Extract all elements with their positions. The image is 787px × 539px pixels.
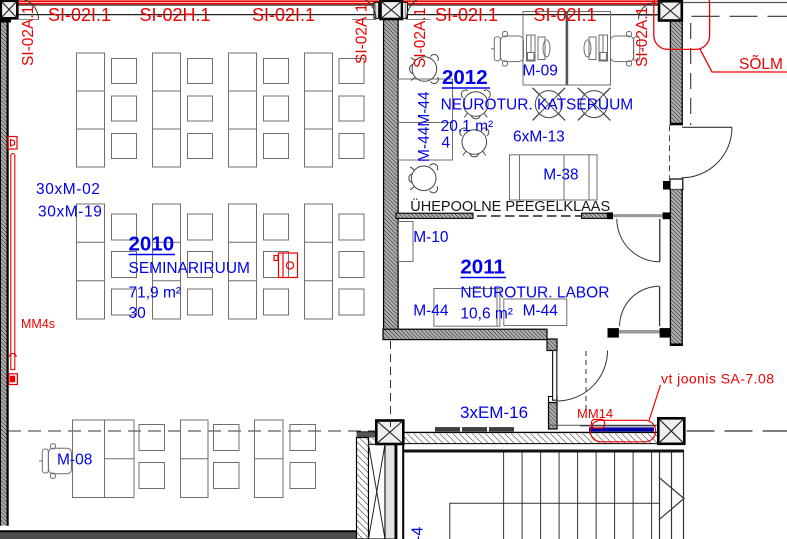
svg-text:30xM-19: 30xM-19	[38, 204, 103, 221]
svg-text:71,9 m²: 71,9 m²	[129, 285, 182, 302]
svg-text:SÕLM 2: SÕLM 2	[739, 56, 787, 73]
svg-text:M-08: M-08	[57, 452, 92, 469]
svg-text:ÜHEPOOLNE PEEGELKLAAS: ÜHEPOOLNE PEEGELKLAAS	[410, 197, 610, 215]
svg-text:20,1 m²: 20,1 m²	[441, 118, 494, 135]
svg-text:SI-02I.1: SI-02I.1	[48, 5, 111, 25]
svg-text:30: 30	[129, 305, 147, 322]
svg-text:MM4s: MM4s	[21, 317, 55, 331]
svg-text:2010: 2010	[129, 233, 175, 256]
svg-text:6xM-13: 6xM-13	[513, 129, 565, 146]
svg-text:30xM-02: 30xM-02	[36, 181, 101, 198]
svg-text:SI-02H.1: SI-02H.1	[140, 5, 211, 25]
svg-text:SI-02A.1: SI-02A.1	[354, 4, 371, 64]
svg-text:2012: 2012	[442, 66, 488, 89]
svg-text:-4: -4	[410, 527, 427, 539]
svg-text:M-44: M-44	[523, 303, 559, 320]
svg-text:SI-02A.1: SI-02A.1	[412, 8, 429, 68]
svg-text:3xEM-16: 3xEM-16	[460, 403, 528, 422]
svg-text:NEUROTUR. KATSERUUM: NEUROTUR. KATSERUUM	[441, 97, 634, 114]
svg-text:NEUROTUR. LABOR: NEUROTUR. LABOR	[460, 285, 609, 302]
svg-text:MM14: MM14	[577, 406, 613, 421]
svg-text:M-10: M-10	[413, 229, 449, 246]
svg-text:M-38: M-38	[543, 167, 578, 184]
svg-text:M-44M-44: M-44M-44	[416, 91, 433, 162]
svg-text:SI-02I.1: SI-02I.1	[252, 5, 315, 25]
svg-text:SI-02I.1: SI-02I.1	[435, 5, 498, 25]
svg-text:SI-02A.1: SI-02A.1	[634, 7, 651, 67]
svg-text:2011: 2011	[460, 256, 504, 279]
svg-text:SI-02A.1: SI-02A.1	[20, 6, 37, 66]
svg-text:SEMINARIRUUM: SEMINARIRUUM	[129, 260, 250, 277]
svg-text:M-44: M-44	[413, 303, 449, 320]
svg-text:M-09: M-09	[523, 63, 558, 80]
svg-text:10,6 m²: 10,6 m²	[460, 306, 513, 323]
svg-text:SI-02I.1: SI-02I.1	[534, 5, 597, 25]
svg-text:4: 4	[442, 135, 451, 152]
svg-text:vt joonis SA-7.08: vt joonis SA-7.08	[661, 371, 774, 387]
